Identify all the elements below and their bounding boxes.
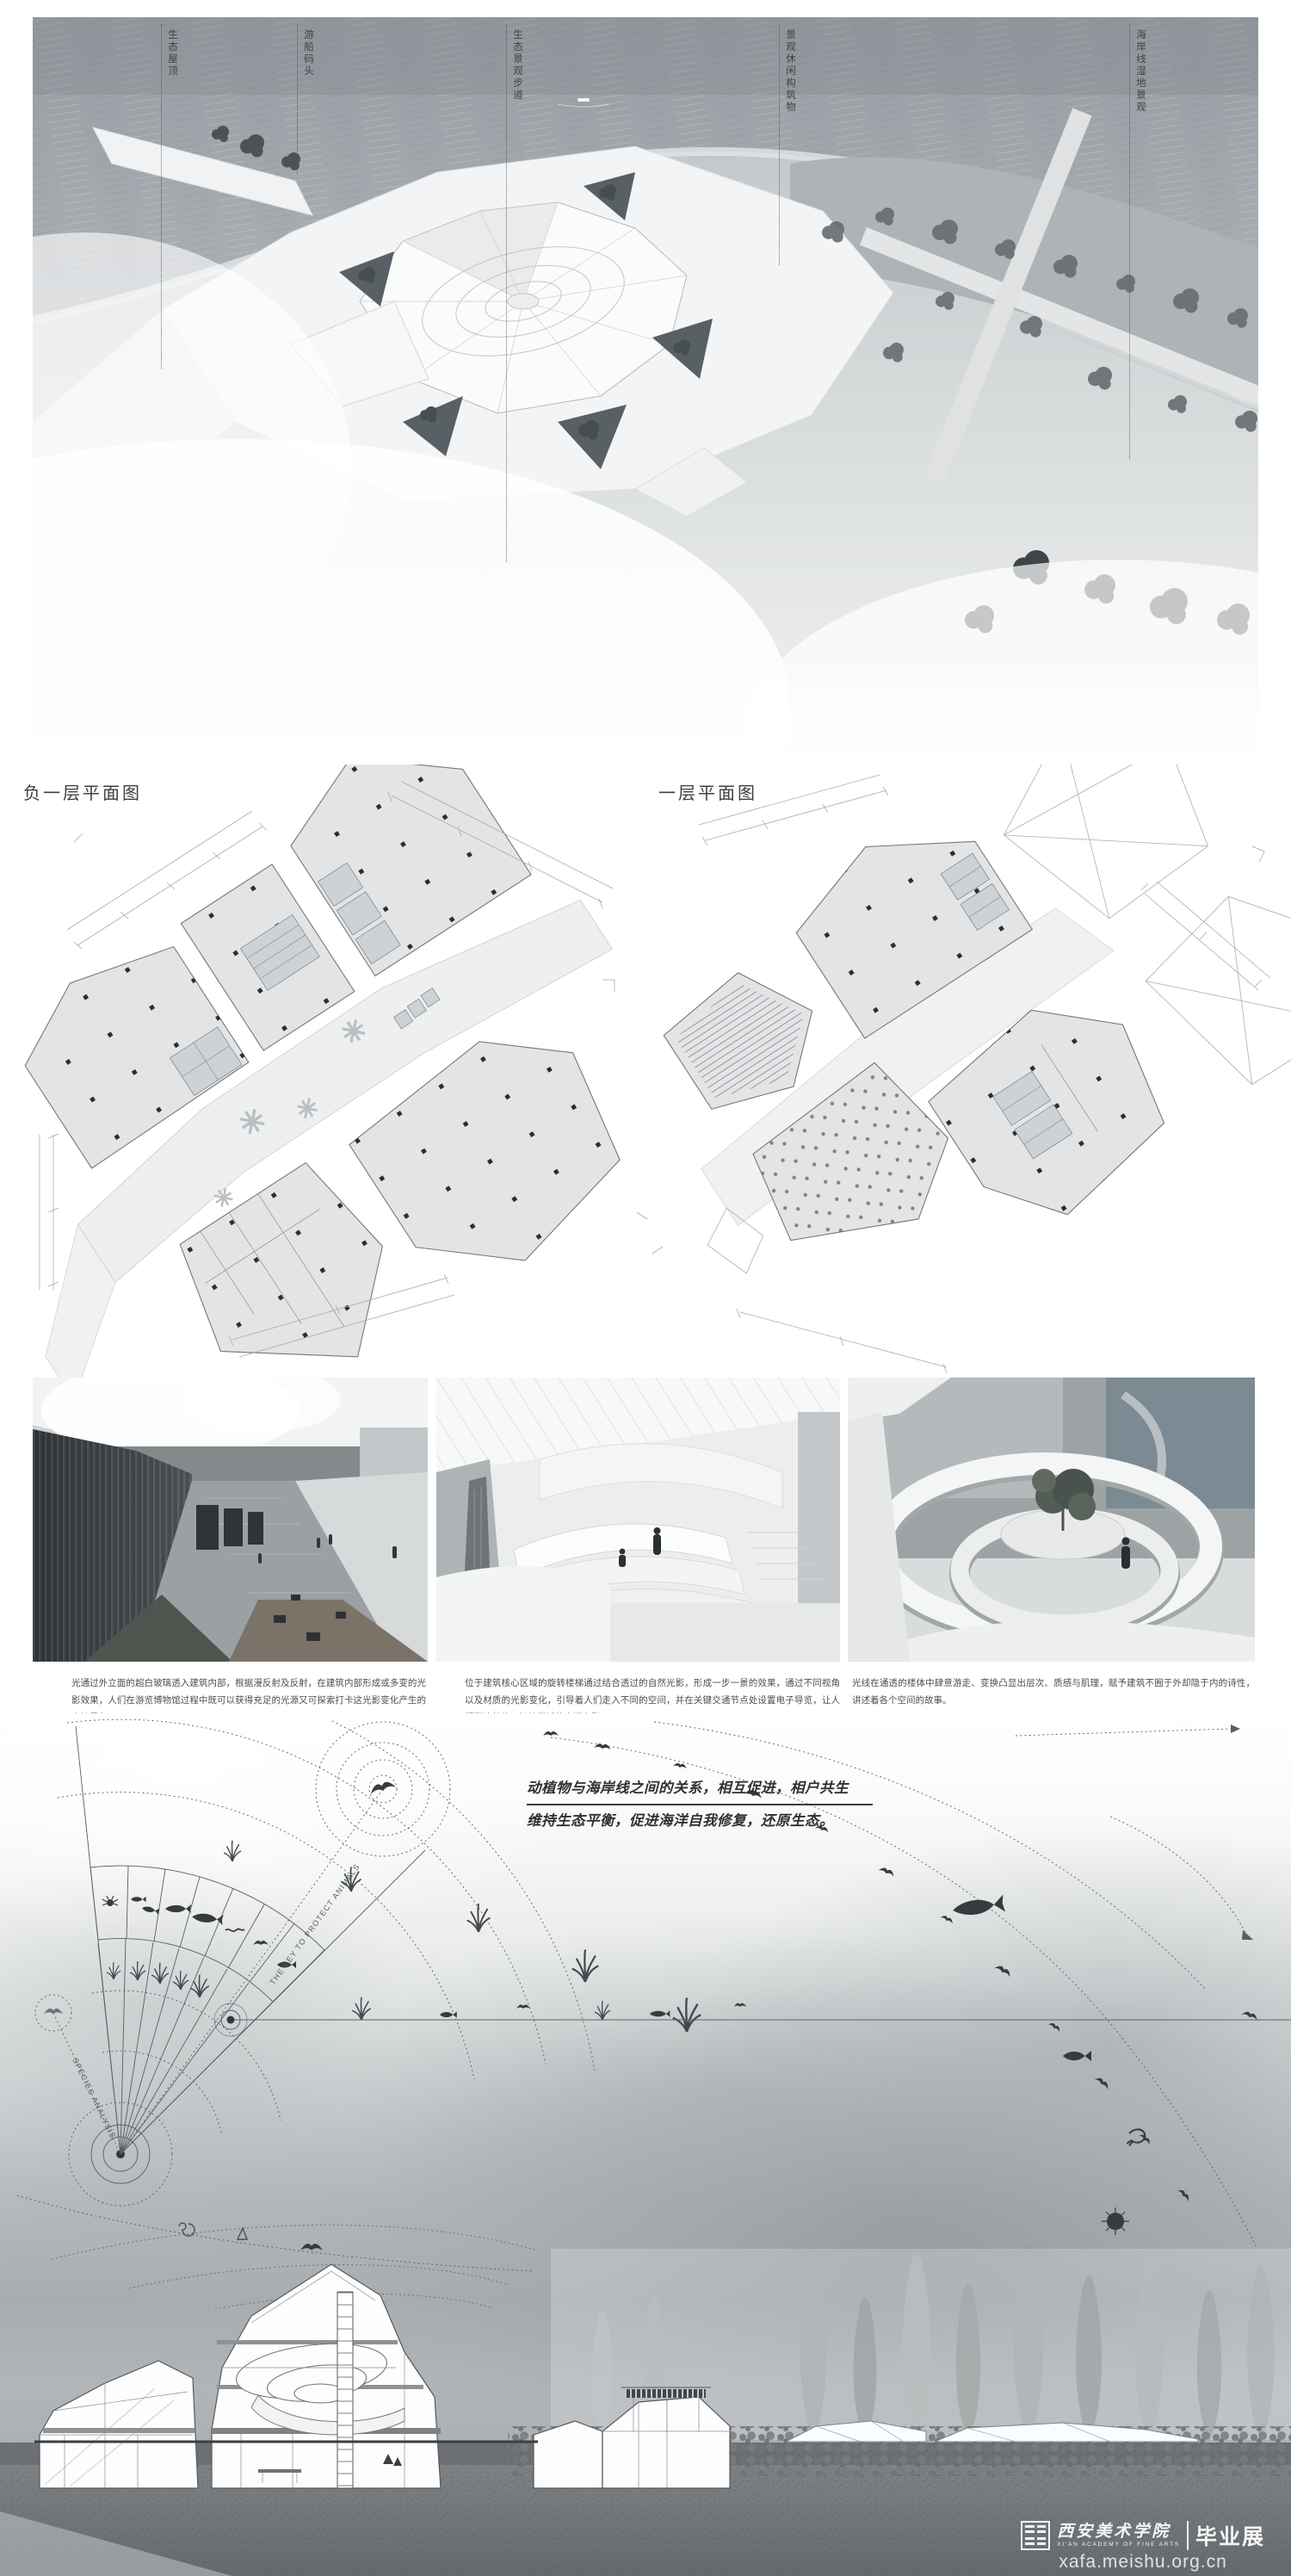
watermark-exhibition: 毕业展 [1195, 2520, 1265, 2551]
key-line: THE KEY TO PROTECT ANIMALS [120, 1722, 450, 2154]
ground-plan [572, 765, 1291, 1378]
ecology-line2: 维持生态平衡，促进海洋自我修复，还原生态。 [527, 1805, 873, 1830]
plant-glyphs [107, 1841, 701, 2032]
species-glyphs [102, 1896, 296, 1968]
aerial-render: 生态屋顶 游船码头 生态景观步道 景观休闲构筑物 海岸线湿地景观 [33, 17, 1258, 765]
lower-composition: THE KEY TO PROTECT ANIMALS SPECIES ANALY… [0, 1713, 1291, 2576]
shore-line [214, 1997, 1291, 2036]
seal-icon [1021, 2521, 1050, 2550]
render3-art [848, 1378, 1255, 1662]
leader-line [779, 24, 780, 265]
caption-render3: 光线在通透的楼体中肆意游走、变换凸显出层次、质感与肌理，赋予建筑不囿于外却隐于内… [852, 1675, 1255, 1710]
render-canal-interior [33, 1378, 428, 1662]
plan-title-basement: 负一层平面图 [23, 779, 142, 804]
watermark-school-en: XI'AN ACADEMY OF FINE ARTS [1057, 2542, 1180, 2548]
marine-glyphs [952, 1895, 1259, 2235]
figure [1121, 1538, 1130, 1570]
ecology-line1: 动植物与海岸线之间的关系，相互促进，相户共生 [527, 1779, 873, 1805]
leader-line [161, 24, 162, 368]
watermark-website: xafa.meishu.org.cn [1021, 2552, 1265, 2573]
section-mid-volume [534, 2421, 602, 2488]
leader-label: 海岸线湿地景观 [1133, 29, 1147, 114]
section-main-building [212, 2264, 441, 2488]
aerial-art [33, 17, 1258, 765]
render2-art [436, 1378, 840, 1662]
section-left-building [40, 2361, 198, 2488]
leader-label: 生态景观步道 [510, 29, 524, 102]
plans-art [0, 765, 1291, 1378]
leader-line [1129, 24, 1130, 459]
basement-plan [0, 765, 729, 1378]
species-label: SPECIES ANALYSIS [71, 2056, 117, 2139]
render-spiral-ramp [848, 1378, 1255, 1662]
presentation-board: 生态屋顶 游船码头 生态景观步道 景观休闲构筑物 海岸线湿地景观 负一层平面图 … [0, 0, 1291, 2576]
leader-label: 生态屋顶 [165, 29, 179, 77]
leader-label: 游船码头 [301, 29, 315, 77]
watermark: 西安美术学院 XI'AN ACADEMY OF FINE ARTS 毕业展 xa… [1021, 2520, 1265, 2573]
leader-line [297, 24, 298, 175]
flow-arrows [1016, 1725, 1253, 1940]
key-label: THE KEY TO PROTECT ANIMALS [269, 1862, 362, 1986]
floor-plans: 负一层平面图 一层平面图 [0, 765, 1291, 1378]
render1-art [33, 1378, 428, 1662]
elevator-shaft [337, 2292, 353, 2488]
plan-title-ground: 一层平面图 [658, 779, 757, 804]
fan-cells [90, 1866, 324, 2002]
render-row [0, 1378, 1291, 1662]
watermark-divider [1187, 2521, 1189, 2550]
watermark-school-cn: 西安美术学院 [1057, 2523, 1180, 2540]
leader-line [506, 24, 507, 562]
render-terraced-atrium [436, 1378, 840, 1662]
species-node: SPECIES ANALYSIS [35, 1995, 120, 2154]
ecology-statement: 动植物与海岸线之间的关系，相互促进，相户共生 维持生态平衡，促进海洋自我修复，还… [527, 1779, 873, 1831]
leader-label: 景观休闲构筑物 [783, 29, 797, 114]
